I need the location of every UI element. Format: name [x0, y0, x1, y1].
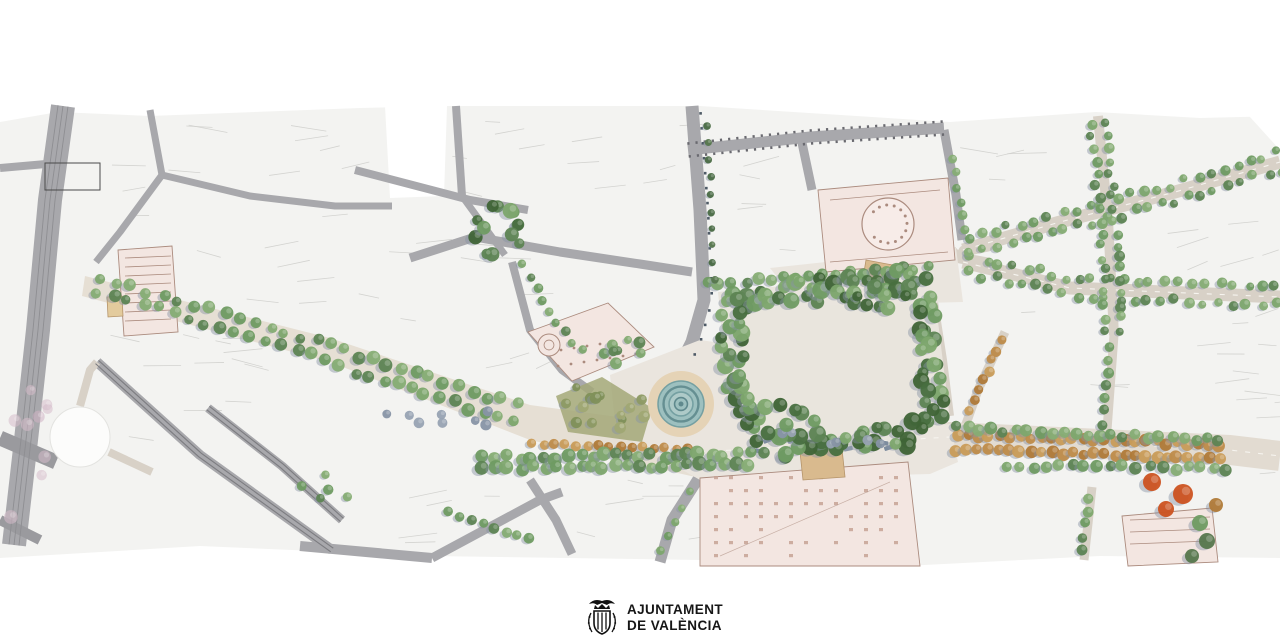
- masterplan-drawing: [0, 0, 1280, 640]
- logo-line2: DE VALÈNCIA: [627, 618, 723, 634]
- fountain: [658, 381, 704, 427]
- page: AJUNTAMENT DE VALÈNCIA: [0, 0, 1280, 640]
- logo-text: AJUNTAMENT DE VALÈNCIA: [627, 602, 723, 635]
- urban-plan-map: [0, 0, 1280, 640]
- ajuntament-logo: AJUNTAMENT DE VALÈNCIA: [584, 597, 723, 639]
- logo-line1: AJUNTAMENT: [627, 602, 723, 618]
- round-plaza: [50, 407, 110, 467]
- valencia-crest-icon: [584, 597, 620, 639]
